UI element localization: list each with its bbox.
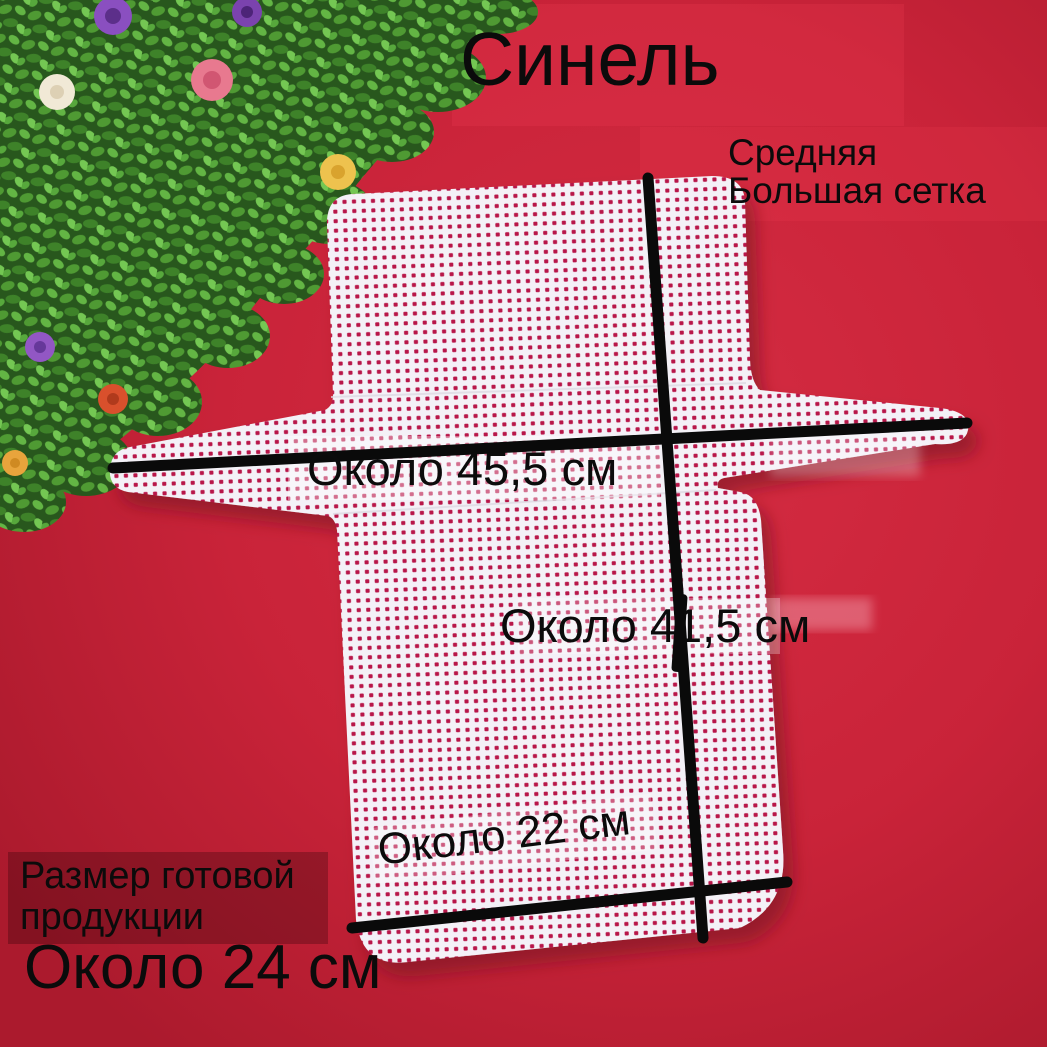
finished-size-caption: Размер готовой продукции [20,856,295,938]
height-measurement-label: Около 41,5 см [500,602,810,651]
finished-size-caption-line2: продукции [20,897,295,938]
finished-size-caption-line1: Размер готовой [20,856,295,897]
product-title: Синель [460,20,720,98]
product-photo: Синель Средняя Большая сетка Около 45,5 … [0,0,1047,1047]
mesh-type-line2: Большая сетка [728,172,986,210]
mesh-type-label: Средняя Большая сетка [728,134,986,211]
mesh-type-line1: Средняя [728,134,986,172]
width-measurement-label: Около 45,5 см [307,445,617,494]
finished-size-value: Около 24 см [24,936,382,1000]
